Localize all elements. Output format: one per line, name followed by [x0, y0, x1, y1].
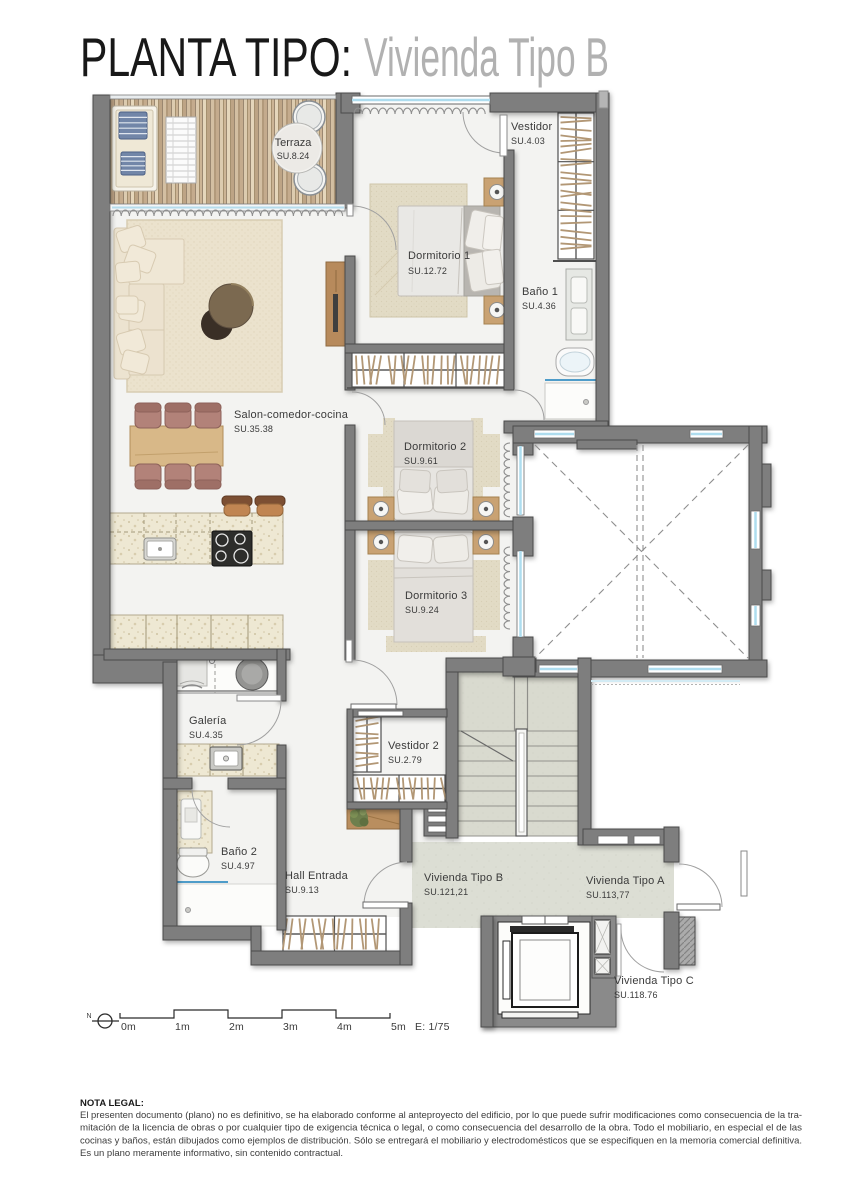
- svg-text:SU.4.36: SU.4.36: [522, 301, 556, 311]
- svg-text:Dormitorio 1: Dormitorio 1: [408, 250, 470, 262]
- svg-text:SU.4.97: SU.4.97: [221, 861, 255, 871]
- svg-text:SU.2.79: SU.2.79: [388, 755, 422, 765]
- svg-text:PLANTA TIPO:: PLANTA TIPO:: [80, 26, 352, 88]
- svg-text:Vestidor: Vestidor: [511, 121, 552, 133]
- svg-text:SU.113,77: SU.113,77: [586, 890, 630, 900]
- svg-text:SU.35.38: SU.35.38: [234, 424, 273, 434]
- svg-text:E: 1/75: E: 1/75: [415, 1021, 450, 1033]
- svg-text:2m: 2m: [229, 1021, 244, 1033]
- svg-text:Vivienda Tipo B: Vivienda Tipo B: [364, 26, 609, 88]
- svg-text:Vivienda Tipo C: Vivienda Tipo C: [614, 975, 694, 987]
- svg-text:SU.4.03: SU.4.03: [511, 136, 545, 146]
- svg-text:NOTA LEGAL:: NOTA LEGAL:: [80, 1098, 144, 1109]
- svg-text:Vivienda Tipo B: Vivienda Tipo B: [424, 872, 503, 884]
- svg-text:SU.4.35: SU.4.35: [189, 730, 223, 740]
- svg-text:SU.9.13: SU.9.13: [285, 885, 319, 895]
- svg-text:1m: 1m: [175, 1021, 190, 1033]
- svg-text:El presenten documento (plano): El presenten documento (plano) no es def…: [80, 1110, 802, 1121]
- svg-text:SU.12.72: SU.12.72: [408, 266, 447, 276]
- svg-text:0m: 0m: [121, 1021, 136, 1033]
- svg-text:SU.9.61: SU.9.61: [404, 456, 438, 466]
- svg-text:Dormitorio 2: Dormitorio 2: [404, 441, 466, 453]
- svg-text:Dormitorio 3: Dormitorio 3: [405, 590, 467, 602]
- svg-text:Baño 1: Baño 1: [522, 286, 558, 298]
- svg-text:Vestidor 2: Vestidor 2: [388, 740, 439, 752]
- svg-text:4m: 4m: [337, 1021, 352, 1033]
- svg-text:SU.9.24: SU.9.24: [405, 605, 439, 615]
- svg-text:Salon-comedor-cocina: Salon-comedor-cocina: [234, 409, 349, 421]
- svg-text:SU.121,21: SU.121,21: [424, 887, 468, 897]
- svg-text:N: N: [86, 1013, 91, 1020]
- svg-text:5m: 5m: [391, 1021, 406, 1033]
- svg-text:Baño 2: Baño 2: [221, 846, 257, 858]
- svg-text:mitación de la licencia de obr: mitación de la licencia de obras o por c…: [80, 1123, 802, 1134]
- svg-text:Vivienda Tipo A: Vivienda Tipo A: [586, 875, 665, 887]
- svg-text:SU.8.24: SU.8.24: [277, 151, 310, 161]
- svg-text:Galería: Galería: [189, 715, 227, 727]
- svg-text:cocinas y baños, están dibujad: cocinas y baños, están dibujados como ej…: [80, 1135, 802, 1146]
- svg-text:Es un plano meramente informat: Es un plano meramente informativo, sin c…: [80, 1148, 343, 1159]
- svg-text:Terraza: Terraza: [275, 137, 313, 149]
- svg-text:3m: 3m: [283, 1021, 298, 1033]
- svg-text:SU.118.76: SU.118.76: [614, 990, 658, 1000]
- svg-text:Hall Entrada: Hall Entrada: [285, 870, 349, 882]
